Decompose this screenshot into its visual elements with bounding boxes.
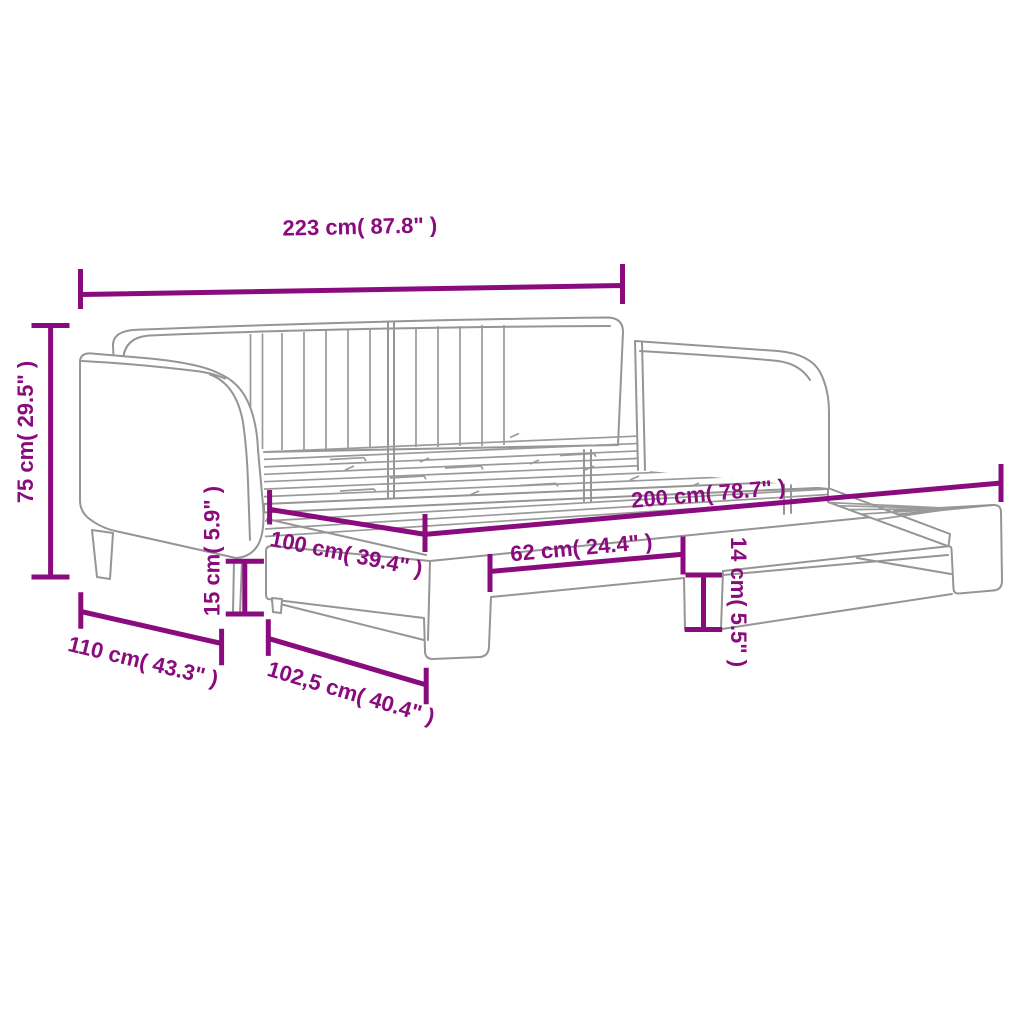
svg-text:15 cm( 5.9" ): 15 cm( 5.9" ) xyxy=(200,486,225,616)
svg-text:75 cm( 29.5" ): 75 cm( 29.5" ) xyxy=(13,361,38,504)
svg-text:223 cm( 87.8" ): 223 cm( 87.8" ) xyxy=(282,212,437,240)
svg-text:14 cm( 5.5" ): 14 cm( 5.5" ) xyxy=(726,537,751,667)
